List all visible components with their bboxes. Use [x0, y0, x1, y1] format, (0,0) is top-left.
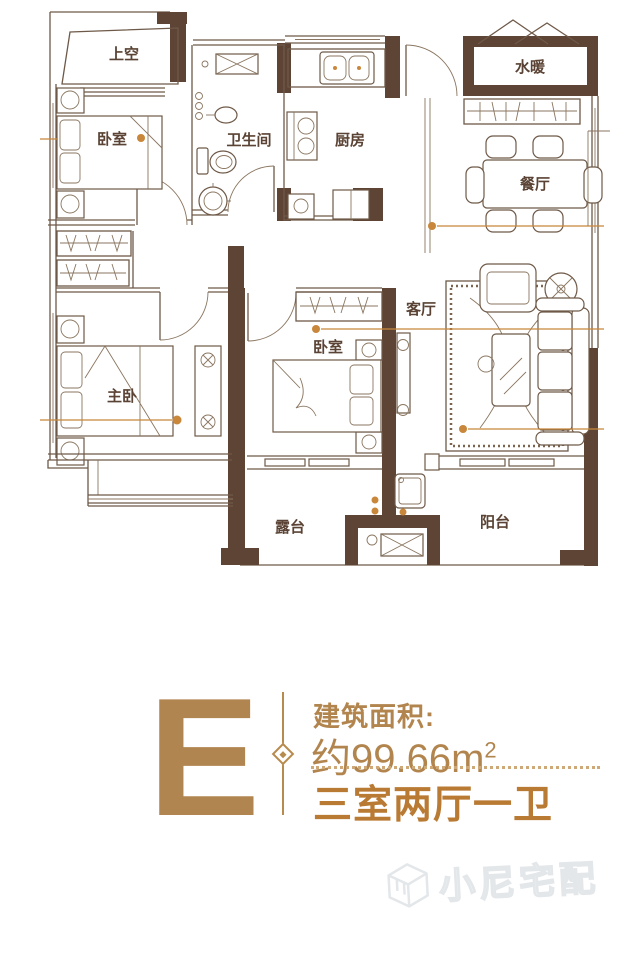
bed-icon — [57, 116, 162, 189]
room-bathroom: 卫生间 — [192, 45, 284, 221]
room-bedroom-mid: 卧室 — [247, 288, 382, 469]
wardrobe-icon — [296, 292, 382, 321]
room-label-water-heating: 水暖 — [515, 58, 546, 76]
room-living: 客厅 — [397, 264, 589, 470]
floor-plan-page: 上空 水暖 — [0, 0, 640, 960]
room-label-bathroom: 卫生间 — [226, 131, 271, 149]
bookshelf-icon — [464, 99, 580, 124]
area-superscript: 2 — [484, 738, 496, 763]
room-dining: 餐厅 — [466, 136, 602, 232]
sofa-icon — [536, 298, 589, 445]
brand-cube-icon — [384, 860, 432, 910]
watermark: 小尼宅配 — [384, 849, 600, 912]
floor-plan: 上空 水暖 — [0, 0, 640, 676]
room-label-void: 上空 — [109, 45, 139, 63]
chair-icon — [533, 136, 563, 158]
washing-machine-icon — [395, 474, 425, 508]
room-label-master: 主卧 — [107, 387, 137, 405]
room-label-dining: 餐厅 — [520, 175, 550, 193]
stove-icon — [287, 112, 317, 160]
watermark-text: 小尼宅配 — [438, 849, 601, 909]
chair-icon — [466, 167, 484, 203]
room-void: 上空 — [62, 28, 178, 96]
tv-stand-icon — [397, 333, 410, 416]
room-terrace: 露台 — [275, 518, 305, 536]
room-label-bedroom-top: 卧室 — [97, 130, 127, 148]
room-label-terrace: 露台 — [275, 518, 305, 536]
desk-icon — [195, 346, 221, 436]
chair-icon — [486, 136, 516, 158]
toilet-icon — [197, 148, 236, 174]
sink-icon — [288, 49, 385, 87]
room-label-balcony: 阳台 — [480, 513, 510, 531]
diamond-ornament-icon — [272, 743, 295, 766]
chair-icon — [486, 210, 516, 232]
entry-door-icon — [406, 45, 457, 96]
chair-icon — [584, 167, 602, 203]
wardrobe-icon — [57, 231, 133, 288]
room-label-kitchen: 厨房 — [335, 131, 365, 149]
room-label-living: 客厅 — [405, 300, 436, 318]
layout-summary: 三室两厅一卫 — [313, 774, 553, 830]
armchair-icon — [480, 264, 536, 312]
dotted-separator — [311, 766, 600, 769]
room-water-heating: 水暖 — [463, 20, 598, 96]
unit-letter: E — [148, 673, 260, 841]
room-master-bedroom: 主卧 — [48, 288, 233, 506]
ac-platform-icon — [367, 534, 423, 556]
coffee-table-icon — [492, 334, 530, 406]
vent-icon — [202, 54, 258, 74]
washbasin-icon — [206, 107, 237, 123]
chair-icon — [533, 210, 563, 232]
room-label-bedroom-mid: 卧室 — [313, 338, 343, 356]
bed-icon — [273, 360, 381, 432]
appliance-icon — [288, 194, 314, 219]
